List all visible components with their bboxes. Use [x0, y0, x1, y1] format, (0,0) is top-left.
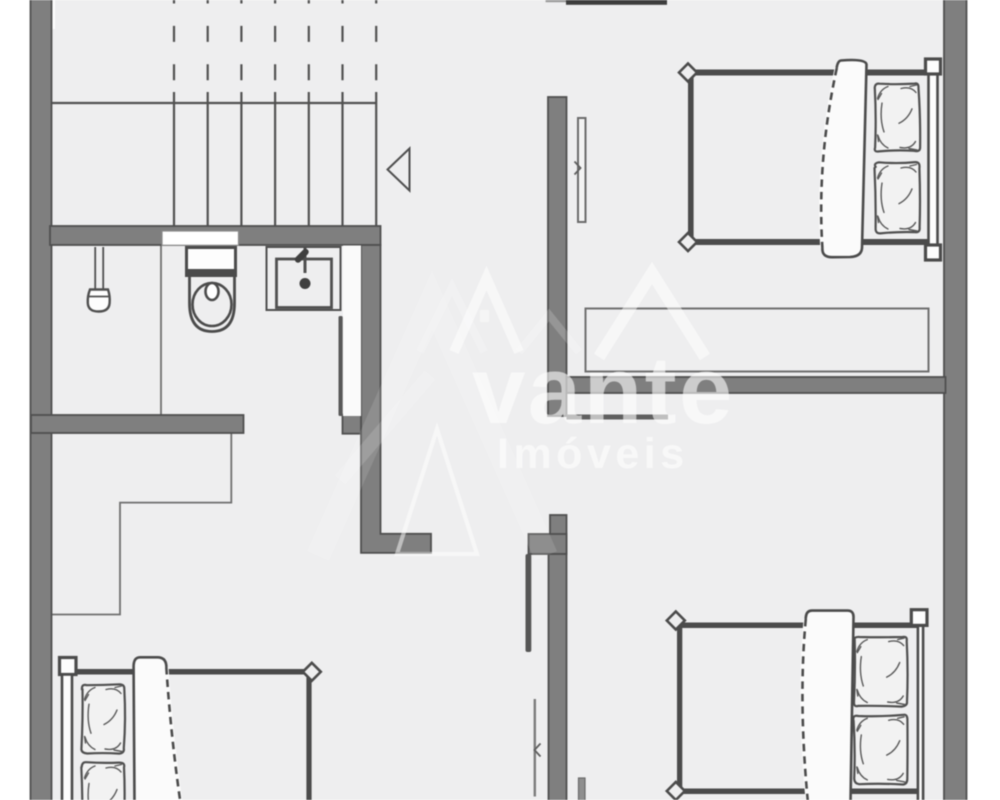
svg-text:Imóveis: Imóveis [497, 430, 689, 478]
svg-text:vante: vante [472, 337, 735, 444]
